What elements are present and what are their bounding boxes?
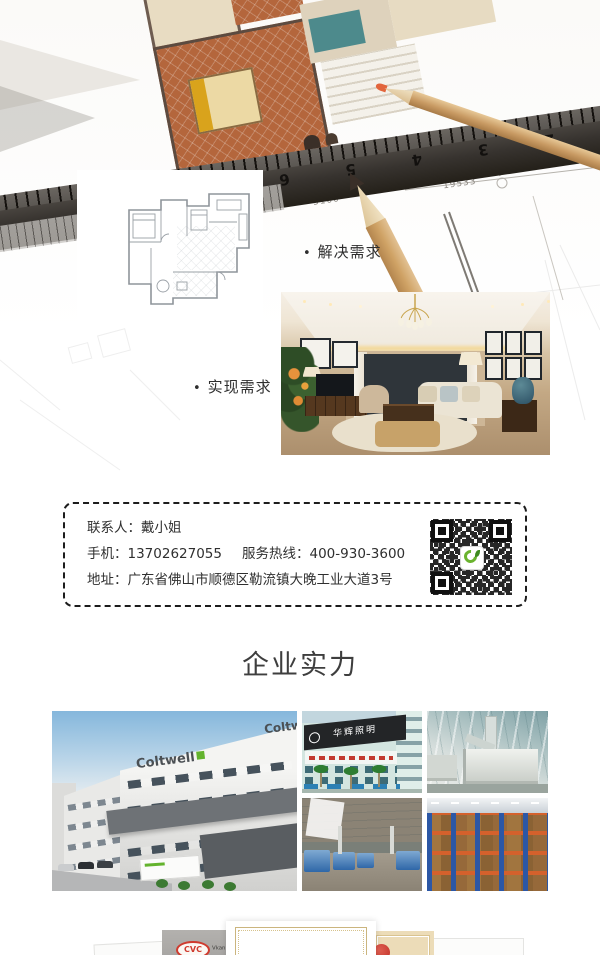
promo-page: 7 6 5 4 3 2 4500 19533 5100	[0, 0, 600, 955]
solve-need-text: 解决需求	[318, 243, 382, 261]
lr-side-table	[502, 400, 537, 433]
phone-label: 手机：	[87, 546, 128, 562]
hotline-value: 400-930-3600	[310, 546, 406, 562]
shrub	[156, 879, 168, 888]
phone-value: 13702627055	[128, 546, 222, 562]
machine	[357, 853, 374, 868]
bullet-icon: •	[193, 381, 202, 396]
hero-photo-section: 7 6 5 4 3 2 4500 19533 5100	[0, 0, 600, 478]
ground	[302, 789, 422, 793]
floorplan-cream-room	[383, 0, 496, 41]
brand-green-square-icon	[196, 751, 205, 760]
address-label: 地址：	[87, 572, 128, 588]
qr-finder-icon	[489, 520, 511, 542]
lr-chandelier	[397, 294, 433, 336]
paint-machine	[463, 749, 538, 785]
lr-blue-vase	[512, 377, 534, 405]
lr-ottoman	[375, 421, 440, 447]
certificate-tan	[372, 931, 434, 955]
gallery-paintline-photo	[427, 711, 548, 793]
address-value: 广东省佛山市顺德区勒流镇大晚工业大道3号	[128, 572, 393, 588]
living-room-photo	[281, 292, 550, 455]
gallery-building-photo: Coltwell Coltwell	[52, 711, 297, 891]
lr-tv-cabinet	[305, 396, 367, 416]
contact-name-value: 戴小姐	[141, 520, 182, 536]
qr-finder-icon	[431, 572, 453, 594]
bullet-icon: •	[303, 246, 312, 261]
lr-wall-art-grid	[485, 331, 541, 380]
car	[58, 864, 74, 871]
paint-machine	[427, 755, 457, 781]
machine	[333, 852, 355, 870]
gallery-hq-photo: 华辉照明	[302, 711, 422, 793]
hq-red-slogan	[309, 756, 393, 760]
lr-spotlights	[303, 300, 306, 303]
contact-name-label: 联系人：	[87, 520, 141, 536]
contact-card: 联系人：戴小姐 手机：13702627055 服务热线：400-930-3600…	[63, 502, 527, 607]
machine	[304, 850, 330, 872]
floorplan-sketch-drawing	[117, 186, 257, 312]
column	[390, 826, 394, 854]
realize-need-text: 实现需求	[208, 378, 272, 396]
palm-tree	[378, 771, 380, 787]
floor	[427, 784, 548, 793]
column	[338, 826, 342, 854]
qr-code	[430, 519, 512, 595]
realize-need-label: •实现需求	[193, 376, 272, 397]
cvc-logo: CVC	[176, 941, 210, 955]
warehouse-ceiling	[427, 798, 548, 813]
machine	[396, 851, 420, 870]
shrub	[224, 882, 236, 891]
shrub	[202, 880, 214, 889]
ceiling-lights	[431, 802, 541, 804]
car	[78, 862, 94, 869]
floorplan-furniture	[324, 132, 338, 145]
palm-tree	[350, 773, 352, 789]
lr-wall-art	[332, 341, 358, 368]
car	[97, 861, 113, 868]
hq-roof-sign-text: 华辉照明	[333, 725, 377, 740]
lr-floor-lamp	[459, 352, 483, 365]
qr-center-logo-icon	[460, 546, 484, 570]
lr-tv	[316, 374, 354, 397]
qr-finder-icon	[431, 520, 453, 542]
gallery-warehouse-photo	[427, 798, 548, 891]
hq-roof-logo-icon	[309, 732, 320, 744]
certificate-white-right	[432, 938, 524, 955]
palm-tree	[320, 771, 322, 787]
solve-need-label: •解决需求	[303, 241, 382, 262]
floorplan-sketch-card	[77, 170, 263, 327]
gallery-workshop-photo	[302, 798, 422, 891]
ground-sign	[139, 855, 200, 881]
hq-facade	[305, 751, 397, 764]
shrub	[178, 881, 190, 890]
section-title-strength: 企业实力	[0, 643, 600, 682]
hotline: 服务热线：400-930-3600	[242, 541, 405, 567]
ruler-number: 4	[411, 150, 424, 169]
ruler-number: 3	[477, 140, 490, 159]
hotline-label: 服务热线：	[242, 546, 310, 562]
